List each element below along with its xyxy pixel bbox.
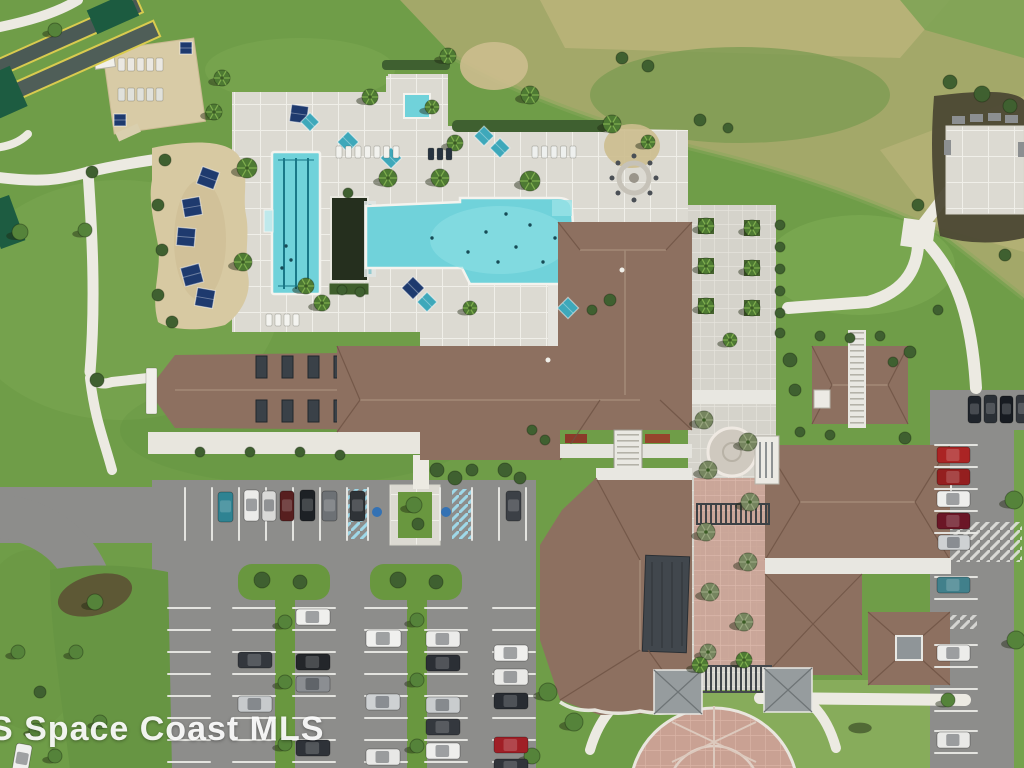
pyramid-cupola xyxy=(896,636,922,660)
car-cabin xyxy=(306,678,320,690)
bush-tree xyxy=(245,447,255,457)
palm-center xyxy=(748,500,752,504)
pool-lounger xyxy=(365,146,371,158)
bush-tree xyxy=(999,249,1011,261)
bush-tree xyxy=(152,199,164,211)
tree-tree xyxy=(1007,631,1024,649)
tree-tree xyxy=(539,683,557,701)
bush-tree xyxy=(293,575,307,589)
bush-tree xyxy=(466,464,478,476)
bush-tree xyxy=(775,220,785,230)
car-cabin xyxy=(946,579,959,591)
roof-vent xyxy=(620,268,625,273)
car-cabin xyxy=(504,671,518,683)
bush-tree xyxy=(295,447,305,457)
swimmer-dot xyxy=(284,244,287,247)
car-cabin xyxy=(376,696,390,708)
roof-walk-connector xyxy=(765,558,951,574)
car-cabin xyxy=(508,499,519,511)
car-cabin xyxy=(504,761,518,768)
bush-tree xyxy=(875,331,885,341)
swimmer-dot xyxy=(504,212,507,215)
bush-tree xyxy=(775,286,785,296)
palm-center xyxy=(704,264,708,268)
bush-tree xyxy=(775,328,785,338)
bush-tree xyxy=(616,52,628,64)
palm-center xyxy=(320,301,324,305)
pool-lounger xyxy=(118,88,125,101)
bush-tree xyxy=(815,331,825,341)
car-cabin xyxy=(946,515,959,527)
bush-tree xyxy=(498,463,512,477)
palm-center xyxy=(220,76,224,80)
pool-lounger xyxy=(293,314,299,326)
ladder-walk-treads xyxy=(850,332,864,426)
palm-center xyxy=(212,110,216,114)
courtyard-cross-walk xyxy=(688,390,776,404)
bush-tree xyxy=(825,430,835,440)
lap-pool-steps xyxy=(264,210,273,232)
palm-center xyxy=(446,54,450,58)
swimmer-dot xyxy=(553,236,556,239)
car-cabin xyxy=(970,404,979,415)
handicap-symbol-1 xyxy=(372,507,382,517)
palm-center xyxy=(610,122,614,126)
bush-tree xyxy=(933,305,943,315)
car-cabin xyxy=(302,499,313,511)
bush-tree xyxy=(156,244,168,256)
bush-tree xyxy=(254,572,270,588)
south-facade-walk xyxy=(148,432,420,454)
car-cabin xyxy=(986,403,995,414)
pool-lounger xyxy=(570,146,576,158)
palm-center xyxy=(304,284,308,288)
car-cabin xyxy=(246,499,257,511)
bush-tree xyxy=(34,686,46,698)
car-cabin xyxy=(504,695,518,707)
palm-center xyxy=(368,95,372,99)
bush-tree xyxy=(343,188,353,198)
car-cabin xyxy=(504,739,518,751)
flower-bed-2 xyxy=(645,434,670,443)
palm-center xyxy=(528,93,532,97)
tree-tree xyxy=(278,615,292,629)
lawn-path-south xyxy=(88,172,93,372)
entrance-walk xyxy=(413,455,429,489)
stair-treads xyxy=(617,433,639,471)
tree-tree xyxy=(69,645,83,659)
swimmer-dot xyxy=(514,245,517,248)
bush-tree xyxy=(430,463,444,477)
palm-center xyxy=(750,306,754,310)
pool-lounger xyxy=(266,314,272,326)
car-cabin xyxy=(376,751,390,763)
car-cabin xyxy=(1002,404,1011,415)
swimmer-dot xyxy=(541,260,544,263)
palm-center xyxy=(430,105,434,109)
deck-north-hedge xyxy=(452,120,608,132)
palm-center xyxy=(746,440,750,444)
pool-lounger xyxy=(355,146,361,158)
car-cabin xyxy=(436,657,450,669)
car-cabin xyxy=(220,500,231,512)
pergola xyxy=(697,504,769,524)
swimmer-dot xyxy=(430,236,433,239)
pool-lounger xyxy=(551,146,557,158)
palm-center xyxy=(750,266,754,270)
resort-pool-shallow xyxy=(430,206,570,274)
car-cabin xyxy=(946,449,959,461)
overlook-plaza xyxy=(946,126,1024,214)
pool-lounger xyxy=(147,58,154,71)
car-cabin xyxy=(1018,403,1024,414)
car-cabin xyxy=(264,499,274,511)
car-cabin xyxy=(376,632,390,645)
palm-center xyxy=(528,179,532,183)
bush-tree xyxy=(355,287,365,297)
bush-tree xyxy=(723,123,733,133)
tree-tree xyxy=(278,675,292,689)
bush-tree xyxy=(783,353,797,367)
tree-tree xyxy=(48,23,62,37)
solar-panel-array xyxy=(642,555,689,652)
bush-tree xyxy=(86,166,98,178)
bush-tree xyxy=(412,518,424,530)
palm-center xyxy=(702,418,706,422)
reflection-pond xyxy=(331,197,368,281)
bush-tree xyxy=(888,357,898,367)
palm-center xyxy=(706,650,710,654)
tree-tree xyxy=(565,713,583,731)
swimmer-dot xyxy=(496,260,499,263)
pool-lounger xyxy=(137,88,144,101)
car-cabin xyxy=(352,499,363,511)
aerial-photo-community-clubhouse: S Space Coast MLS xyxy=(0,0,1024,768)
pool-lounger xyxy=(346,146,352,158)
car-cabin xyxy=(15,751,29,765)
swimmer-dot xyxy=(280,266,283,269)
north-garden-bed xyxy=(460,42,528,90)
fire-pit-center xyxy=(629,173,639,183)
pool-lounger xyxy=(147,88,154,101)
car-cabin xyxy=(946,471,959,483)
bush-tree xyxy=(1003,99,1017,113)
bush-tree xyxy=(943,75,957,89)
northeast-cupola xyxy=(814,390,830,408)
bush-tree xyxy=(335,450,345,460)
car-cabin xyxy=(282,499,292,511)
palm-center xyxy=(706,468,710,472)
bush-tree xyxy=(448,471,462,485)
path-junction-pad xyxy=(900,218,936,250)
car-cabin xyxy=(306,611,320,623)
bush-tree xyxy=(604,294,616,306)
pool-lounger xyxy=(384,146,390,158)
aerial-map xyxy=(0,0,1024,768)
bush-tree xyxy=(775,242,785,252)
car-cabin xyxy=(436,699,450,711)
bush-tree xyxy=(540,435,550,445)
car-cabin xyxy=(436,745,450,757)
tree-tree xyxy=(1005,491,1023,509)
tree-tree xyxy=(410,673,424,687)
tree-tree xyxy=(87,594,103,610)
roof-vent xyxy=(546,358,551,363)
bush-tree xyxy=(390,572,406,588)
bush-tree xyxy=(166,316,178,328)
bush-tree xyxy=(775,308,785,318)
palm-center xyxy=(438,176,442,180)
car-cabin xyxy=(248,654,262,666)
clock-tower xyxy=(755,436,779,484)
swimmer-dot xyxy=(484,230,487,233)
bush-tree xyxy=(90,373,104,387)
car-cabin xyxy=(946,647,959,659)
bush-tree xyxy=(974,86,990,102)
palm-center xyxy=(245,166,249,170)
palm-center xyxy=(742,620,746,624)
mls-watermark: S Space Coast MLS xyxy=(0,710,324,749)
bush-tree xyxy=(337,285,347,295)
pool-lounger xyxy=(128,88,135,101)
tree-tree xyxy=(410,613,424,627)
bush-tree xyxy=(775,264,785,274)
car-cabin xyxy=(436,721,450,733)
pool-lounger xyxy=(156,58,163,71)
car-cabin xyxy=(306,656,320,668)
handicap-hatch-2 xyxy=(452,489,472,539)
sun-shelf xyxy=(552,200,572,216)
car-cabin xyxy=(946,493,959,505)
palm-center xyxy=(646,140,650,144)
bush-tree xyxy=(899,432,911,444)
pool-lounger xyxy=(561,146,567,158)
bush-tree xyxy=(195,447,205,457)
car-cabin xyxy=(436,633,450,645)
bush-tree xyxy=(642,60,654,72)
palm-center xyxy=(746,560,750,564)
palm-center xyxy=(704,304,708,308)
bush-tree xyxy=(845,333,855,343)
palm-center xyxy=(742,658,746,662)
tree-tree xyxy=(12,224,28,240)
tree-tree xyxy=(48,749,62,763)
car-cabin xyxy=(324,499,335,511)
tree-tree xyxy=(410,739,424,753)
bush-tree xyxy=(795,427,805,437)
tree-tree xyxy=(11,645,25,659)
pool-lounger xyxy=(284,314,290,326)
swimmer-dot xyxy=(466,250,469,253)
bush-tree xyxy=(514,472,526,484)
bush-tree xyxy=(694,114,706,126)
palm-center xyxy=(241,260,245,264)
east-verge xyxy=(1014,430,1024,768)
pool-lounger xyxy=(118,58,125,71)
palm-center xyxy=(453,141,457,145)
pool-lounger xyxy=(146,368,157,414)
palm-center xyxy=(728,338,732,342)
handicap-symbol-2 xyxy=(441,507,451,517)
bush-tree xyxy=(912,199,924,211)
bush-tree xyxy=(429,575,443,589)
pool-lounger xyxy=(336,146,342,158)
bush-tree xyxy=(904,346,916,358)
tree-shadow xyxy=(848,723,871,734)
pool-lounger xyxy=(137,58,144,71)
ballroom-north-trim xyxy=(596,468,692,480)
palm-center xyxy=(704,224,708,228)
tree-tree xyxy=(941,693,955,707)
bush-tree xyxy=(159,154,171,166)
pool-lounger xyxy=(275,314,281,326)
pool-lounger xyxy=(393,146,399,158)
palm-center xyxy=(750,226,754,230)
car-cabin xyxy=(947,537,960,548)
palm-center xyxy=(698,663,702,667)
pool-lounger xyxy=(128,58,135,71)
pool-lounger xyxy=(428,148,434,160)
palm-center xyxy=(386,176,390,180)
swimmer-dot xyxy=(528,223,531,226)
pool-lounger xyxy=(542,146,548,158)
palm-center xyxy=(704,530,708,534)
bush-tree xyxy=(789,384,801,396)
pool-lounger xyxy=(437,148,443,160)
pool-lounger xyxy=(374,146,380,158)
palm-center xyxy=(468,306,472,310)
pool-lounger xyxy=(156,88,163,101)
bush-tree xyxy=(527,425,537,435)
swimmer-dot xyxy=(289,258,292,261)
pool-lounger xyxy=(532,146,538,158)
bush-tree xyxy=(152,289,164,301)
car-cabin xyxy=(504,647,518,659)
bush-tree xyxy=(587,305,597,315)
pool-lounger xyxy=(446,148,452,160)
tree-tree xyxy=(406,497,422,513)
car-cabin xyxy=(248,698,262,710)
car-cabin xyxy=(946,734,959,746)
tree-tree xyxy=(78,223,92,237)
palm-center xyxy=(708,590,712,594)
